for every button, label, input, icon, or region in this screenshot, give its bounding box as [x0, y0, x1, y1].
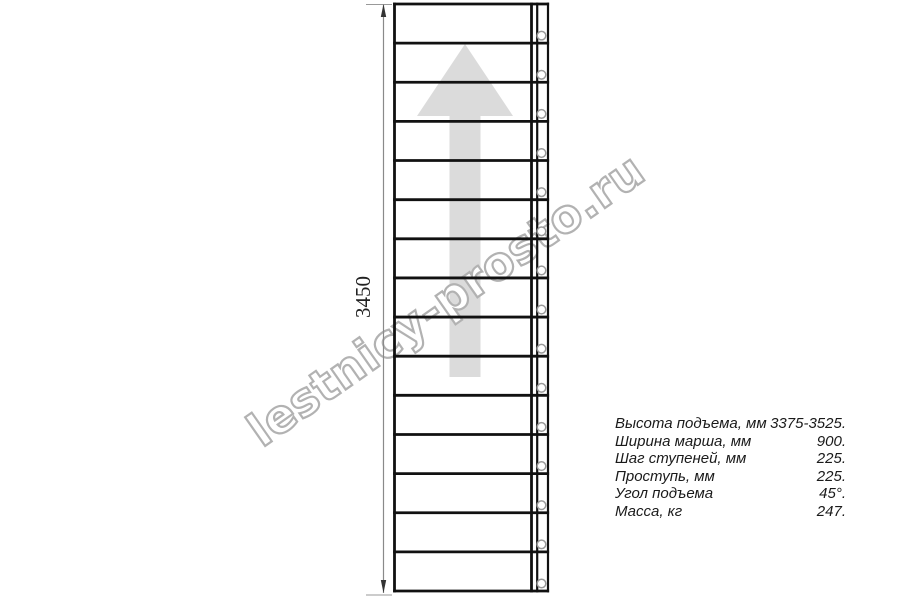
spec-label: Угол подъема: [615, 485, 713, 503]
bolt-hole-circle: [537, 501, 546, 510]
bolt-hole-circle: [537, 31, 546, 40]
spec-value: 900.: [817, 433, 846, 451]
spec-label: Масса, кг: [615, 503, 682, 521]
bolt-hole-circle: [537, 149, 546, 158]
spec-row: Шаг ступеней, мм 225.: [615, 450, 846, 468]
spec-value: 225.: [817, 468, 846, 486]
spec-row: Высота подъема, мм 3375-3525.: [615, 415, 846, 433]
bolt-hole-circle: [537, 188, 546, 197]
bolt-hole-circle: [537, 423, 546, 432]
dimension-arrow-down-icon: [381, 580, 386, 593]
spec-value: 247.: [817, 503, 846, 521]
bolt-hole-circle: [537, 305, 546, 314]
spec-row: Угол подъема 45°.: [615, 485, 846, 503]
bolt-hole-circle: [537, 384, 546, 393]
bolt-hole-circle: [537, 344, 546, 353]
bolt-hole-circle: [537, 266, 546, 275]
dimension-arrow-up-icon: [381, 4, 386, 17]
bolt-hole-circle: [537, 579, 546, 588]
bolt-hole-circle: [537, 462, 546, 471]
bolt-hole-circle: [537, 70, 546, 79]
spec-table: Высота подъема, мм 3375-3525. Ширина мар…: [615, 415, 846, 520]
bolt-hole-circle: [537, 227, 546, 236]
spec-label: Проступь, мм: [615, 468, 715, 486]
dimension-label: 3450: [351, 276, 375, 318]
spec-label: Шаг ступеней, мм: [615, 450, 746, 468]
bolt-hole-circle: [537, 540, 546, 549]
bolt-hole-circle: [537, 110, 546, 119]
spec-row: Масса, кг 247.: [615, 503, 846, 521]
spec-value: 45°.: [819, 485, 846, 503]
spec-value: 225.: [817, 450, 846, 468]
spec-row: Ширина марша, мм 900.: [615, 433, 846, 451]
spec-label: Ширина марша, мм: [615, 433, 751, 451]
watermark: lestnicy-prosto.ru: [237, 143, 654, 458]
canvas: lestnicy-prosto.ru3450 Высота подъема, м…: [0, 0, 900, 600]
spec-row: Проступь, мм 225.: [615, 468, 846, 486]
spec-value: 3375-3525.: [770, 415, 846, 433]
spec-label: Высота подъема, мм: [615, 415, 767, 433]
